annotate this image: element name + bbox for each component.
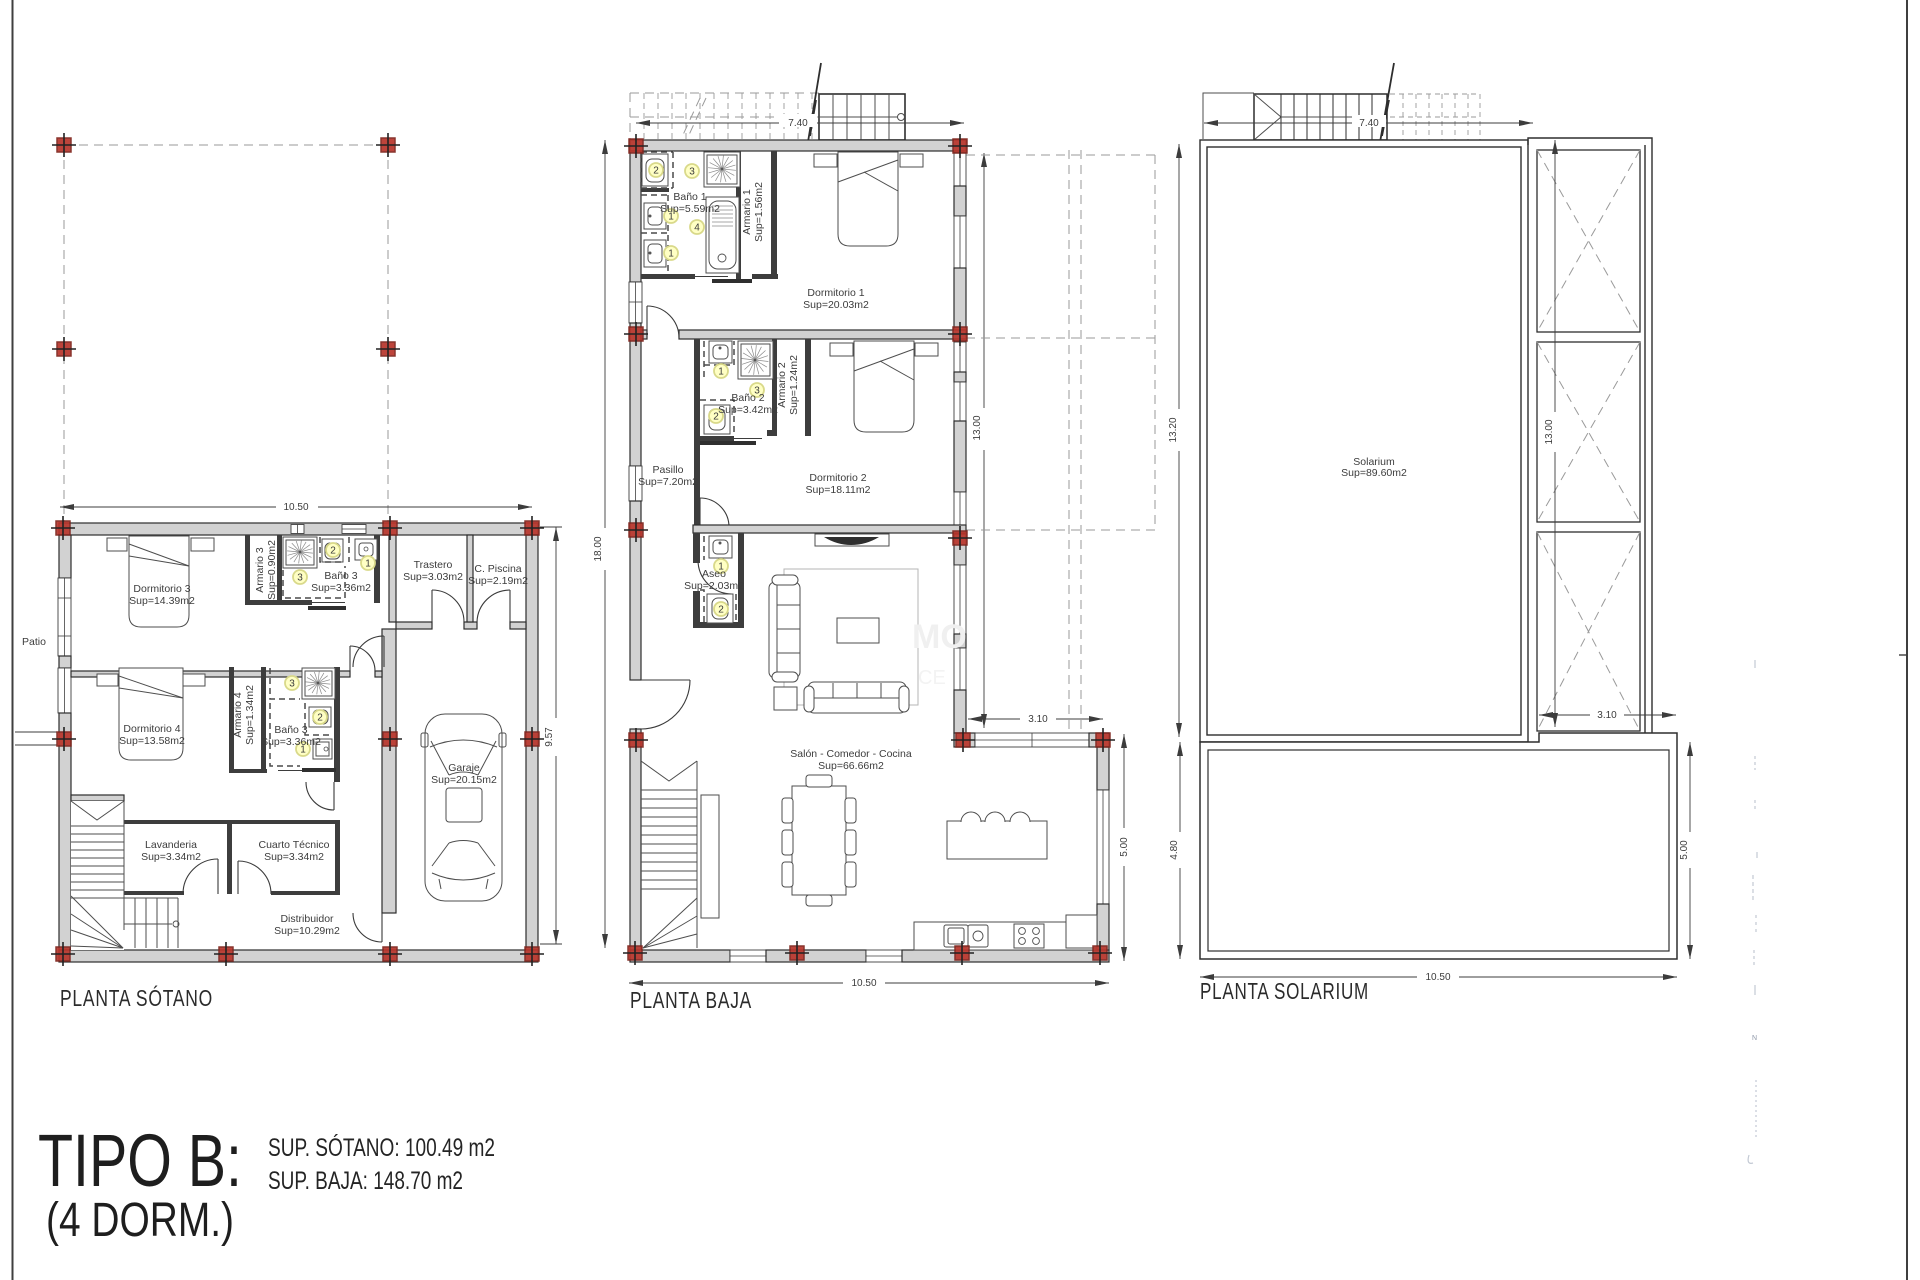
- svg-text:3: 3: [689, 167, 695, 178]
- svg-text:Sup=20.03m2: Sup=20.03m2: [803, 299, 869, 311]
- svg-text:Sup=2.19m2: Sup=2.19m2: [468, 575, 528, 587]
- svg-text:Sup=1.34m2: Sup=1.34m2: [244, 685, 256, 745]
- svg-text:3.10: 3.10: [1597, 710, 1617, 721]
- svg-text:Sup=3.36m2: Sup=3.36m2: [311, 582, 371, 594]
- svg-text:Pasillo: Pasillo: [653, 464, 684, 476]
- svg-text:13.00: 13.00: [1544, 419, 1555, 444]
- svg-text:Trastero: Trastero: [414, 559, 453, 571]
- svg-text:Sup=3.34m2: Sup=3.34m2: [141, 851, 201, 863]
- svg-text:Dormitorio 3: Dormitorio 3: [133, 583, 190, 595]
- svg-text:Dormitorio 2: Dormitorio 2: [809, 472, 866, 484]
- svg-text:Sup=3.34m2: Sup=3.34m2: [264, 851, 324, 863]
- svg-text:Cuarto Técnico: Cuarto Técnico: [258, 839, 329, 851]
- svg-text:Baño 3: Baño 3: [274, 724, 307, 736]
- svg-text:Aseo: Aseo: [702, 568, 726, 580]
- svg-text:TIPO B:: TIPO B:: [38, 1119, 242, 1202]
- svg-text:4: 4: [694, 223, 700, 234]
- svg-text:Garaje: Garaje: [448, 762, 480, 774]
- svg-text:Baño 1: Baño 1: [673, 191, 706, 203]
- svg-text:5.00: 5.00: [1119, 837, 1130, 857]
- svg-text:2: 2: [330, 546, 336, 557]
- svg-text:Distribuidor: Distribuidor: [280, 913, 334, 925]
- svg-text:Armario 1: Armario 1: [741, 189, 753, 235]
- svg-text:1: 1: [365, 559, 371, 570]
- svg-text:1: 1: [718, 367, 724, 378]
- svg-text:PLANTA SÓTANO: PLANTA SÓTANO: [60, 985, 213, 1011]
- svg-text:(4 DORM.): (4 DORM.): [46, 1194, 234, 1247]
- svg-text:Sup=14.39m2: Sup=14.39m2: [129, 595, 195, 607]
- svg-text:4.80: 4.80: [1169, 840, 1180, 860]
- svg-text:10.50: 10.50: [851, 978, 876, 989]
- svg-text:10.50: 10.50: [283, 502, 308, 513]
- svg-text:5.00: 5.00: [1679, 840, 1690, 860]
- svg-text:2: 2: [718, 605, 724, 616]
- svg-text:Sup=1.56m2: Sup=1.56m2: [753, 182, 765, 242]
- svg-text:SUP. BAJA: 148.70 m2: SUP. BAJA: 148.70 m2: [268, 1167, 463, 1195]
- svg-text:Sup=3.03m2: Sup=3.03m2: [403, 571, 463, 583]
- svg-text:Sup=0.90m2: Sup=0.90m2: [266, 540, 278, 600]
- svg-text:Armario 3: Armario 3: [254, 547, 266, 593]
- svg-text:Sup=20.15m2: Sup=20.15m2: [431, 774, 497, 786]
- svg-text:Armario 4: Armario 4: [232, 692, 244, 738]
- svg-text:13.00: 13.00: [972, 415, 983, 440]
- svg-text:C. Piscina: C. Piscina: [474, 563, 521, 575]
- svg-text:3: 3: [289, 679, 295, 690]
- svg-text:7.40: 7.40: [1359, 118, 1379, 129]
- svg-text:2: 2: [317, 713, 323, 724]
- svg-text:SUP. SÓTANO: 100.49 m2: SUP. SÓTANO: 100.49 m2: [268, 1133, 495, 1162]
- svg-text:PLANTA SOLARIUM: PLANTA SOLARIUM: [1200, 978, 1369, 1004]
- svg-text:Sup=10.29m2: Sup=10.29m2: [274, 925, 340, 937]
- svg-text:Salón - Comedor - Cocina: Salón - Comedor - Cocina: [790, 748, 912, 760]
- svg-text:Sup=3.36m2: Sup=3.36m2: [261, 736, 321, 748]
- svg-text:Sup=2.03m2: Sup=2.03m2: [684, 580, 744, 592]
- svg-text:Lavanderia: Lavanderia: [145, 839, 197, 851]
- svg-text:N: N: [1752, 1035, 1757, 1042]
- svg-text:Sup=89.60m2: Sup=89.60m2: [1341, 467, 1407, 479]
- svg-text:13.20: 13.20: [1168, 417, 1179, 442]
- svg-text:CE: CE: [918, 667, 946, 689]
- svg-text:Baño 3: Baño 3: [324, 570, 357, 582]
- svg-text:MO: MO: [912, 618, 967, 656]
- svg-text:3: 3: [297, 573, 303, 584]
- svg-text:Sup=66.66m2: Sup=66.66m2: [818, 760, 884, 772]
- svg-text:2: 2: [653, 166, 659, 177]
- svg-text:18.00: 18.00: [593, 536, 604, 561]
- svg-text:PLANTA BAJA: PLANTA BAJA: [630, 987, 752, 1013]
- svg-text:7.40: 7.40: [788, 118, 808, 129]
- svg-text:3.10: 3.10: [1028, 714, 1048, 725]
- svg-text:Dormitorio 1: Dormitorio 1: [807, 287, 864, 299]
- svg-text:Baño 2: Baño 2: [731, 392, 764, 404]
- svg-text:Dormitorio 4: Dormitorio 4: [123, 723, 180, 735]
- svg-text:Patio: Patio: [22, 636, 46, 648]
- svg-text:Sup=5.59m2: Sup=5.59m2: [660, 203, 720, 215]
- svg-text:10.50: 10.50: [1425, 972, 1450, 983]
- svg-text:Sup=3.42m2: Sup=3.42m2: [718, 404, 778, 416]
- svg-text:Sup=18.11m2: Sup=18.11m2: [806, 484, 871, 496]
- svg-text:Sup=1.24m2: Sup=1.24m2: [788, 355, 800, 415]
- svg-text:Sup=13.58m2: Sup=13.58m2: [119, 735, 185, 747]
- svg-text:Sup=7.20m2: Sup=7.20m2: [638, 476, 698, 488]
- svg-text:9.57: 9.57: [544, 727, 555, 747]
- svg-text:1: 1: [668, 249, 674, 260]
- svg-text:Armario 2: Armario 2: [776, 362, 788, 408]
